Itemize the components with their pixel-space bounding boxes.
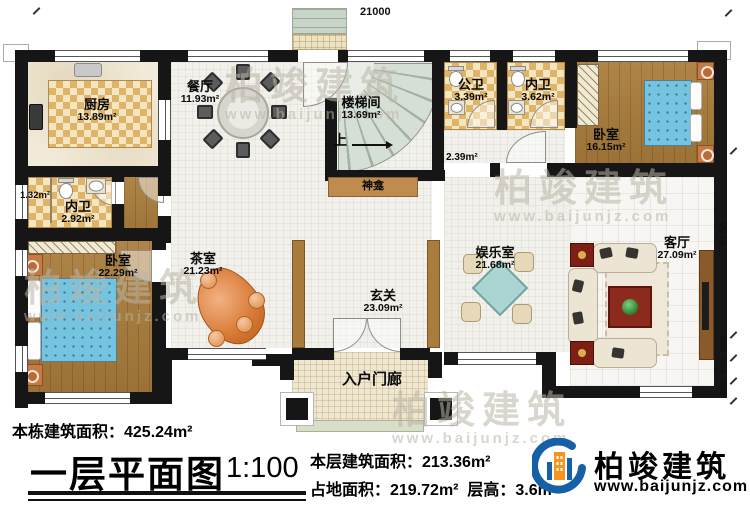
kitchen-sink xyxy=(74,63,102,77)
dining-chair xyxy=(197,105,213,119)
stair-arrow-head xyxy=(386,141,393,149)
window-dining-top xyxy=(188,50,268,62)
wall-living-bottom xyxy=(542,386,727,398)
floor-area: 本层建筑面积：213.36m² xyxy=(310,448,491,472)
dimension-tick xyxy=(730,331,738,339)
window-stair-top xyxy=(348,50,424,62)
side-table-lamp xyxy=(570,243,594,267)
dimension-tick xyxy=(730,377,738,385)
dining-chair xyxy=(271,105,287,119)
tea-stool xyxy=(208,330,225,347)
plan-scale: 1:100 xyxy=(226,452,299,485)
dimension-tick xyxy=(725,9,733,17)
bedroom-left-label: 卧室22.29m² xyxy=(85,254,151,280)
sofa-pillow xyxy=(572,311,584,325)
nightstand xyxy=(697,62,714,80)
bed-right-pillow xyxy=(690,114,702,142)
bed-left xyxy=(41,278,117,362)
bedroom-right-wardrobe xyxy=(577,64,599,126)
rear-canopy-roof xyxy=(292,8,347,34)
brand-logo xyxy=(532,438,586,494)
dining-chair xyxy=(236,64,250,80)
title-underline xyxy=(28,491,306,501)
porch-label: 入户门廊 xyxy=(322,372,422,389)
bed-right xyxy=(644,80,692,146)
dimension-top: 21000 xyxy=(360,6,391,18)
wall-porch-right-b xyxy=(428,352,442,378)
sofa-pillow xyxy=(611,347,624,359)
bed-right-pillow xyxy=(690,82,702,110)
dining-chair xyxy=(236,142,250,158)
closet-area-label: 1.32m² xyxy=(20,190,50,201)
window-entertainment-bottom xyxy=(458,352,536,365)
bathroom-sink xyxy=(86,178,106,194)
dimension-right-400: 400 xyxy=(719,379,730,396)
bed-left-pillow xyxy=(27,280,41,318)
wall-bath-divider xyxy=(497,62,507,130)
wall-corridor-bottom-a xyxy=(490,163,500,177)
window-bedroom-left-wall-b xyxy=(15,346,28,372)
dimension-tick xyxy=(730,147,738,155)
wall-foyer-bottom-left xyxy=(292,348,334,360)
window-ensuite-right xyxy=(513,50,555,62)
porch-column-right xyxy=(430,398,452,420)
plant xyxy=(622,299,638,315)
porch-step xyxy=(296,420,424,432)
game-chair xyxy=(461,302,481,322)
shrine-label: 神龛 xyxy=(328,180,418,192)
rear-canopy-step xyxy=(292,34,347,50)
wall-bath-left xyxy=(432,62,444,177)
building-total-area: 本栋建筑面积：425.24m² xyxy=(12,418,193,442)
window-kitchen-top xyxy=(55,50,140,62)
bedroom-right-door-opening xyxy=(500,163,547,177)
wall-bedroom-left-top xyxy=(15,228,171,241)
dimension-right-total: 8700 xyxy=(718,222,730,246)
game-chair xyxy=(512,304,532,324)
wall-foyer-bottom-right xyxy=(400,348,430,360)
stair-direction-arrow xyxy=(352,144,388,146)
window-bedroom-left-bottom xyxy=(45,392,130,404)
wall-ensuite-left-a xyxy=(112,174,124,182)
corridor-area-label: 2.39m² xyxy=(446,152,478,163)
foyer-label: 玄关23.09m² xyxy=(350,289,416,315)
bedroom-left-wardrobe xyxy=(28,241,116,254)
stairwell-label: 楼梯间13.69m² xyxy=(325,96,397,122)
wall-dressing-right-a xyxy=(158,174,171,196)
sofa-bottom xyxy=(593,338,657,368)
tea-stool xyxy=(248,292,265,309)
brand-logo-icon xyxy=(532,438,586,494)
window-public-bath xyxy=(450,50,490,62)
wall-bedroom-left-right-a xyxy=(152,241,166,250)
window-living-bottom xyxy=(640,386,692,398)
nightstand xyxy=(697,145,714,163)
public-bath-label: 公卫3.39m² xyxy=(447,78,495,104)
wall-ensuite-right-right xyxy=(565,62,577,128)
sofa-left xyxy=(568,268,598,344)
dimension-tick xyxy=(730,354,738,362)
kitchen-label: 厨房13.89m² xyxy=(60,98,134,124)
tv xyxy=(702,282,709,330)
porch-column-left xyxy=(286,398,308,420)
foyer-partition-left xyxy=(292,240,305,348)
dining-label: 餐厅11.93m² xyxy=(163,80,237,106)
tea-stool xyxy=(236,316,253,333)
ensuite-left-label: 内卫2.92m² xyxy=(52,200,104,226)
tea-room-label: 茶室21.23m² xyxy=(170,252,236,278)
window-tea-bottom xyxy=(188,348,266,360)
floor-plan-page: 神龛 xyxy=(0,0,750,506)
wall-corridor-bottom-b xyxy=(547,163,727,177)
kitchen-stove xyxy=(29,104,43,130)
side-table-lamp xyxy=(570,341,594,365)
ensuite-right-label: 内卫3.62m² xyxy=(514,78,562,104)
entertainment-label: 娱乐室21.68m² xyxy=(462,246,528,272)
foyer-partition-right xyxy=(427,240,440,348)
rear-door-opening xyxy=(298,50,338,62)
window-bedroom-right-top xyxy=(598,50,688,62)
bed-left-pillow xyxy=(27,322,41,360)
dimension-right-800: 800 xyxy=(719,357,730,374)
wall-kitchen-bottom xyxy=(15,166,171,177)
kitchen-pass-through xyxy=(158,100,171,140)
stair-up-label: 上 xyxy=(330,133,350,148)
plan-title: 一层平面图 xyxy=(30,444,225,498)
wall-ensuite-left-b xyxy=(112,204,124,230)
toilet xyxy=(58,178,74,199)
dimension-right-600: 600 xyxy=(719,335,730,352)
sofa-pillow xyxy=(625,247,639,259)
window-bedroom-left-wall-a xyxy=(15,250,28,276)
brand-url: www.baijunjz.com xyxy=(594,478,748,496)
dimension-tick xyxy=(730,397,738,405)
living-label: 客厅27.09m² xyxy=(644,236,710,262)
footprint-and-height: 占地面积：219.72m² 层高：3.6m xyxy=(310,476,552,500)
bedroom-right-label: 卧室16.15m² xyxy=(575,128,637,154)
dimension-tick xyxy=(33,7,41,15)
